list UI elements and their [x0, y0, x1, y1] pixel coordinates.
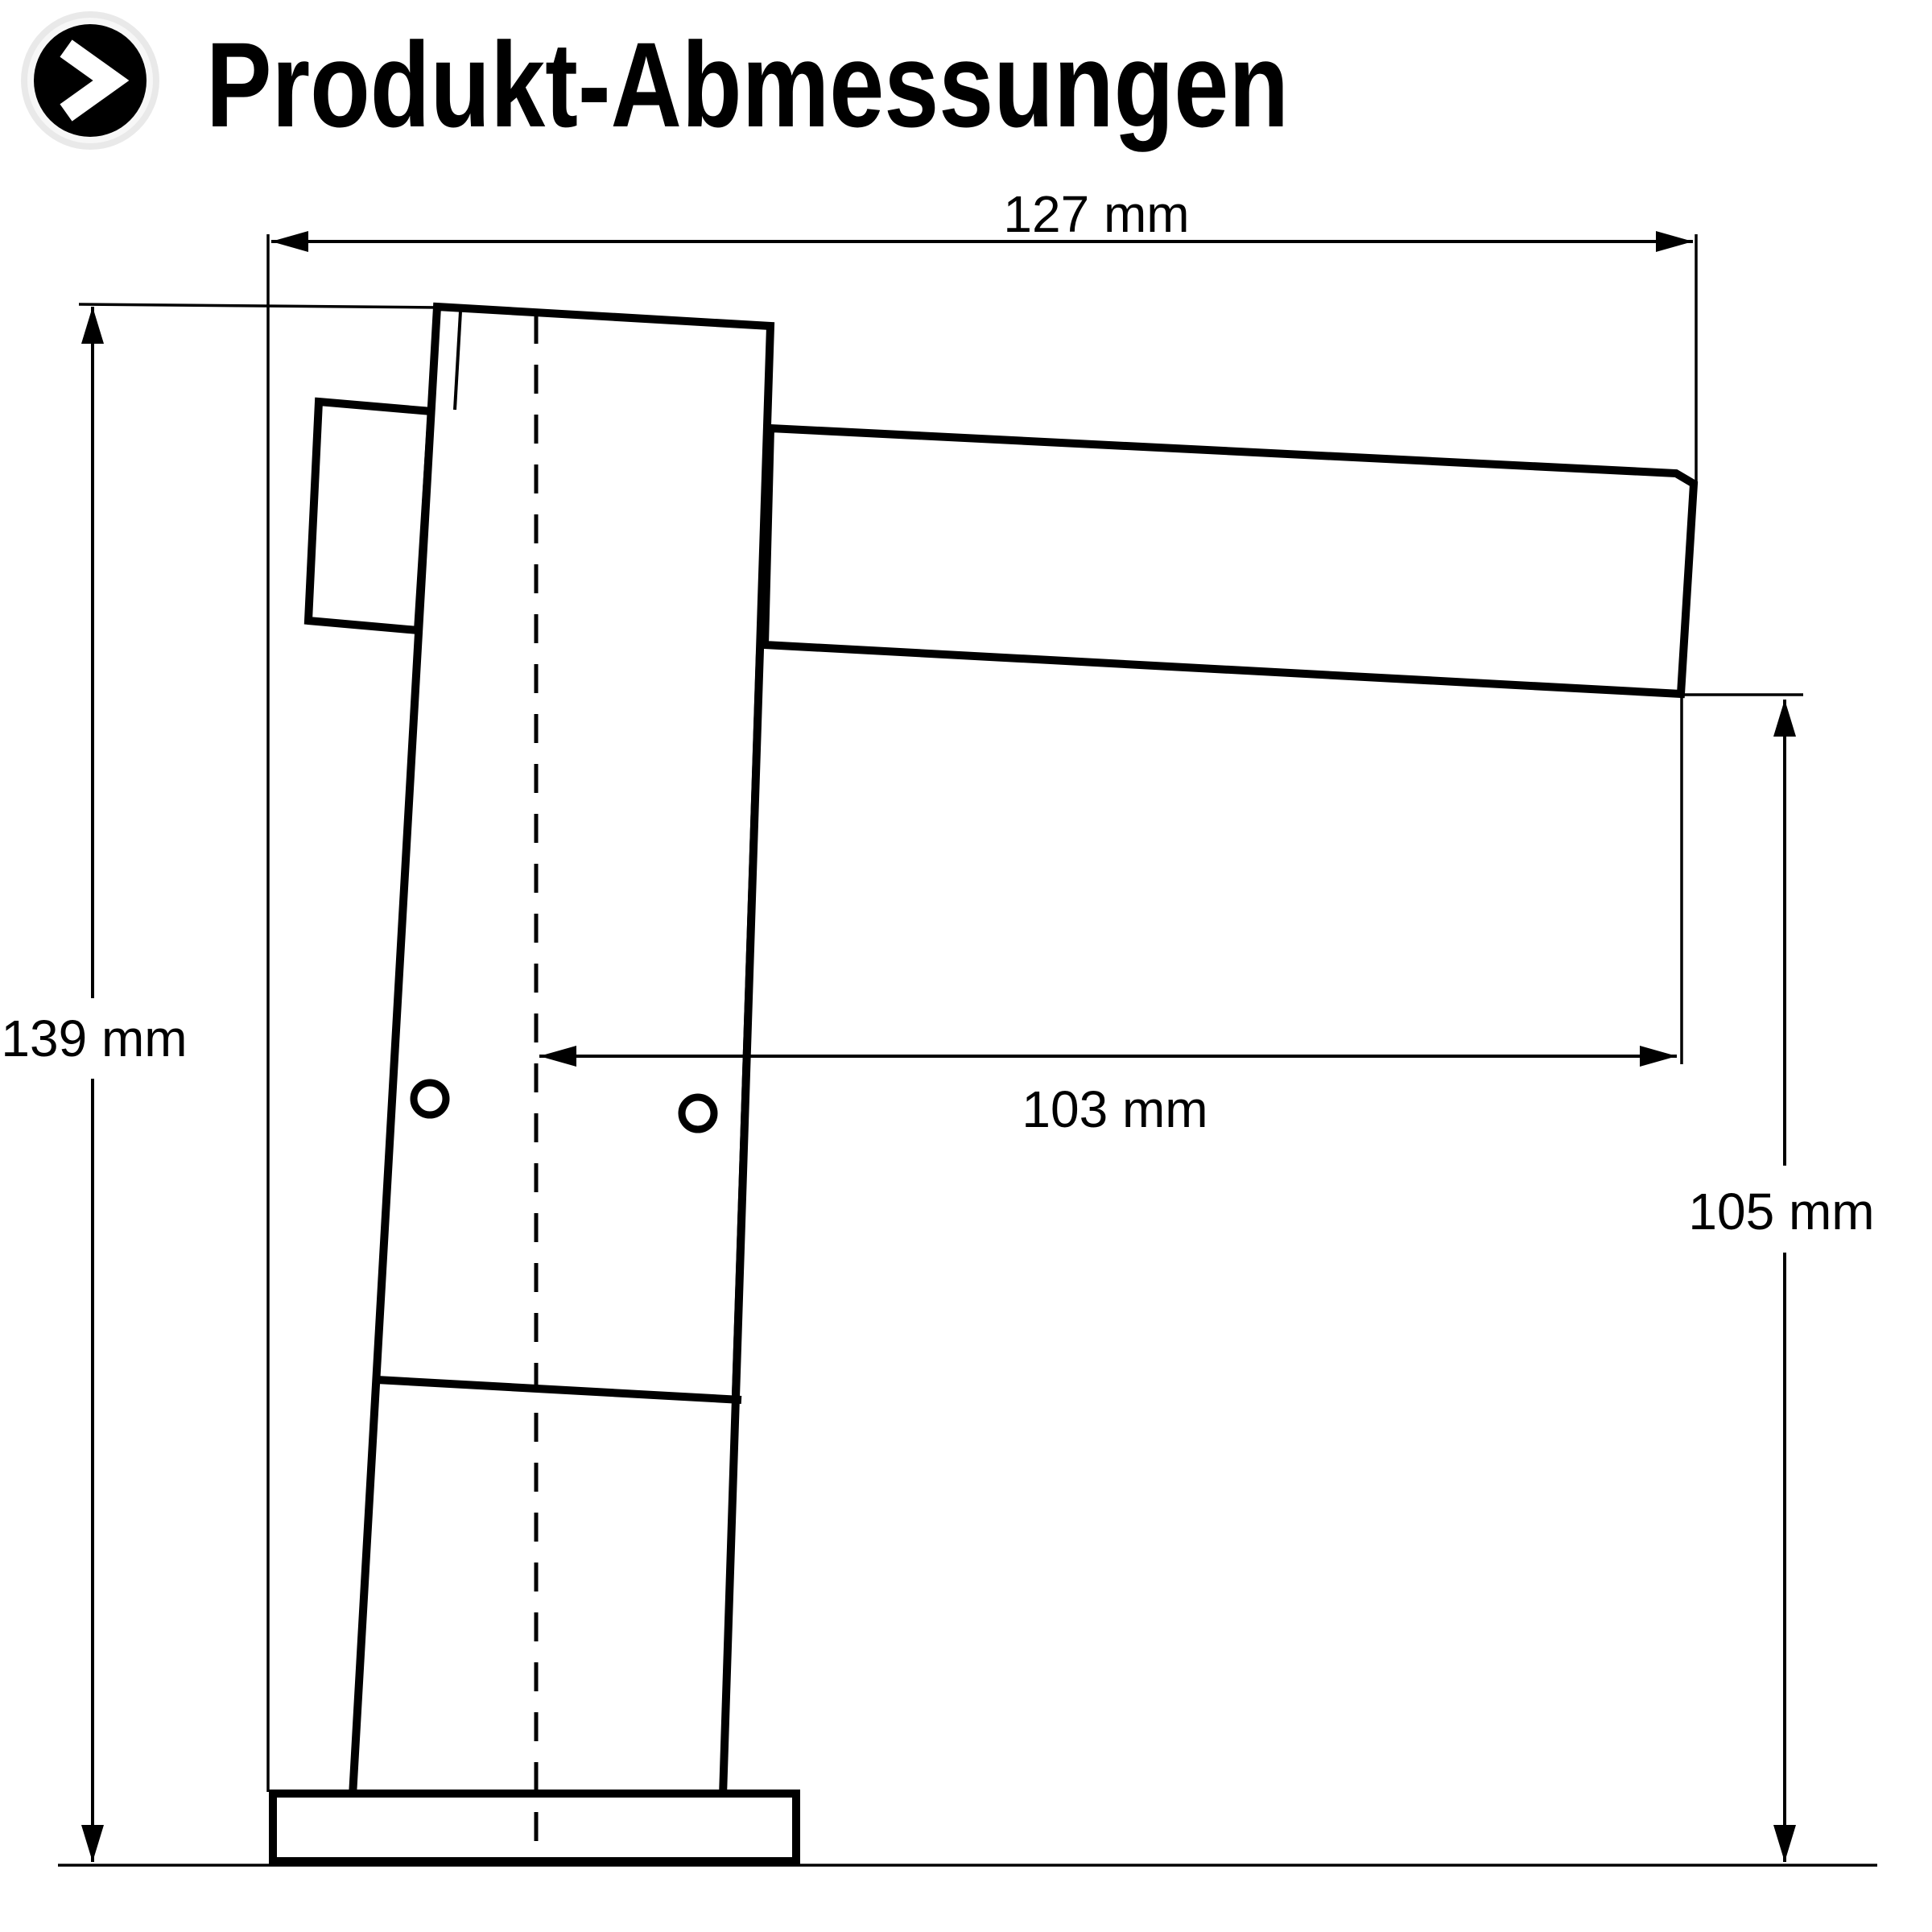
product-outline [273, 307, 1694, 1861]
arrowhead-right-icon [1640, 1046, 1677, 1067]
dim-label-spout-reach: 103 mm [1022, 1080, 1207, 1138]
dim-label-total-height: 139 mm [1, 1009, 187, 1067]
arrowhead-up-icon [81, 307, 104, 344]
arrowhead-right-icon [1656, 231, 1693, 252]
mounting-hole-left [414, 1083, 446, 1115]
page-title: Produkt-Abmessungen [206, 17, 1289, 152]
dimension-outlet-height: 105 mm [1688, 700, 1874, 1862]
product-dimensions-page: Produkt-Abmessungen [0, 0, 1932, 1932]
header: Produkt-Abmessungen [21, 11, 1289, 152]
dimension-total-depth: 127 mm [271, 185, 1693, 252]
dim-label-outlet-height: 105 mm [1688, 1183, 1874, 1241]
faucet-spout [765, 428, 1694, 694]
arrowhead-down-icon [81, 1825, 104, 1862]
arrowhead-up-icon [1773, 700, 1796, 737]
icon-disc [34, 24, 147, 137]
faucet-handle [308, 402, 431, 630]
dim-label-total-depth: 127 mm [1003, 185, 1189, 243]
mounting-hole-right [682, 1097, 714, 1129]
arrowhead-left-icon [271, 231, 308, 252]
chevron-right-icon [21, 11, 159, 150]
arrowhead-down-icon [1773, 1825, 1796, 1862]
witness-top-left [79, 304, 439, 308]
dimension-drawing: Produkt-Abmessungen [0, 0, 1932, 1932]
dimension-total-height: 139 mm [1, 307, 187, 1862]
